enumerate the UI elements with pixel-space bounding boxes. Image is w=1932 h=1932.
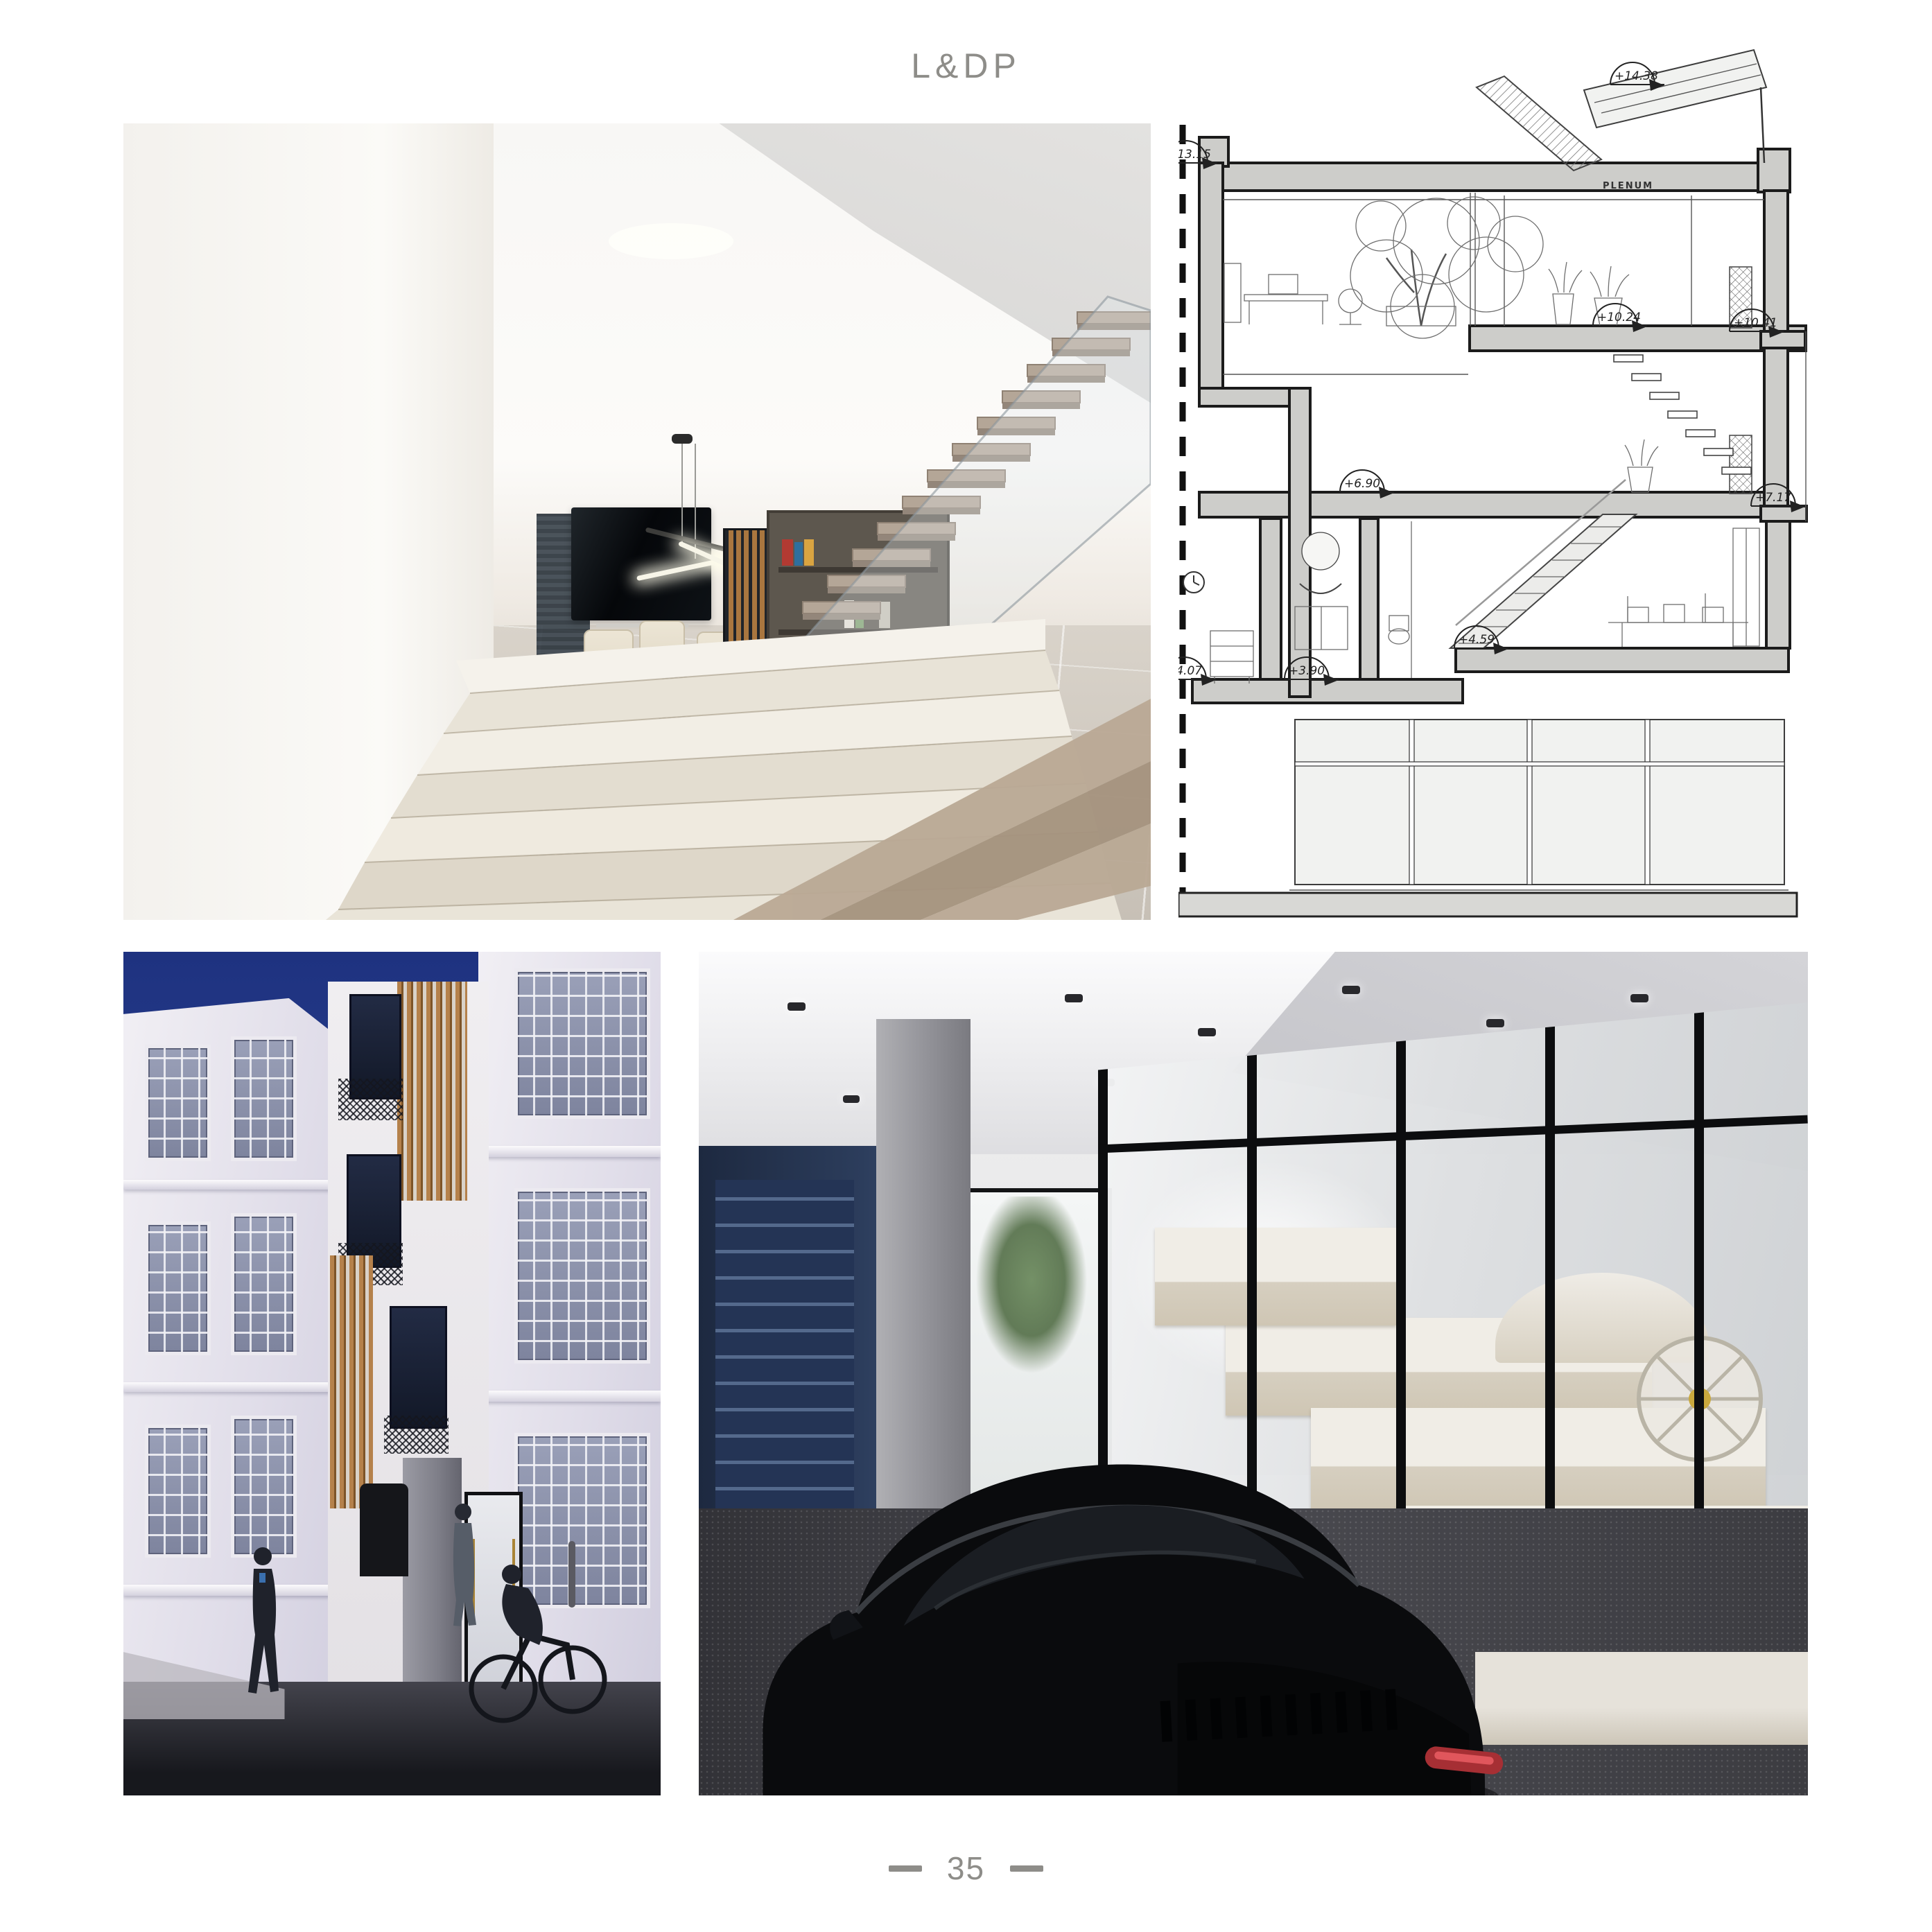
svg-text:+10.41: +10.41 xyxy=(1734,316,1777,330)
footer-rule-left xyxy=(889,1865,922,1872)
storefront-glazing xyxy=(1289,720,1789,890)
facade-render-image xyxy=(123,952,661,1795)
ground-line xyxy=(1178,893,1797,916)
roof-slope-hatch xyxy=(1477,76,1601,171)
page-footer: 35 xyxy=(0,1850,1932,1887)
roof-skylight xyxy=(1477,50,1766,171)
svg-text:+14.38: +14.38 xyxy=(1615,69,1658,83)
balcony-mesh-rail xyxy=(1730,435,1752,494)
recessed-light xyxy=(1198,1028,1216,1036)
man-at-entrance xyxy=(453,1504,476,1626)
room-label: PLENUM xyxy=(1603,181,1653,191)
street-figures xyxy=(123,952,661,1795)
svg-text:+4.07: +4.07 xyxy=(1178,664,1202,678)
section-drawing: +14.38 +13.15 +10.41 +10.24 xyxy=(1178,21,1808,922)
page-number: 35 xyxy=(947,1850,985,1887)
black-sports-car xyxy=(732,1327,1529,1795)
portfolio-page: L&DP xyxy=(0,0,1932,1932)
cyclist xyxy=(471,1565,604,1721)
marble-step xyxy=(1155,1228,1396,1325)
recessed-light xyxy=(1486,1019,1504,1027)
recessed-light xyxy=(1630,994,1648,1002)
recessed-light xyxy=(1065,994,1083,1002)
svg-text:+3.90: +3.90 xyxy=(1289,664,1325,678)
walking-man xyxy=(248,1547,279,1694)
svg-text:+6.90: +6.90 xyxy=(1344,477,1380,491)
svg-text:+10.24: +10.24 xyxy=(1597,311,1641,324)
downlight-glow xyxy=(609,223,733,259)
section-drawing-svg: +14.38 +13.15 +10.41 +10.24 xyxy=(1178,21,1808,922)
footer-rule-right xyxy=(1010,1865,1043,1872)
svg-text:+7.17: +7.17 xyxy=(1755,491,1791,505)
svg-text:+4.59: +4.59 xyxy=(1459,633,1495,647)
recessed-light xyxy=(787,1002,806,1011)
garage-render-image xyxy=(699,952,1808,1795)
interior-render-image xyxy=(123,123,1151,920)
recessed-light xyxy=(1342,986,1360,994)
svg-text:+13.15: +13.15 xyxy=(1178,148,1211,162)
bollard xyxy=(568,1541,575,1608)
recessed-light xyxy=(843,1095,860,1103)
interior-stair-graphics xyxy=(123,123,1151,920)
courtyard-tree xyxy=(1350,197,1543,338)
